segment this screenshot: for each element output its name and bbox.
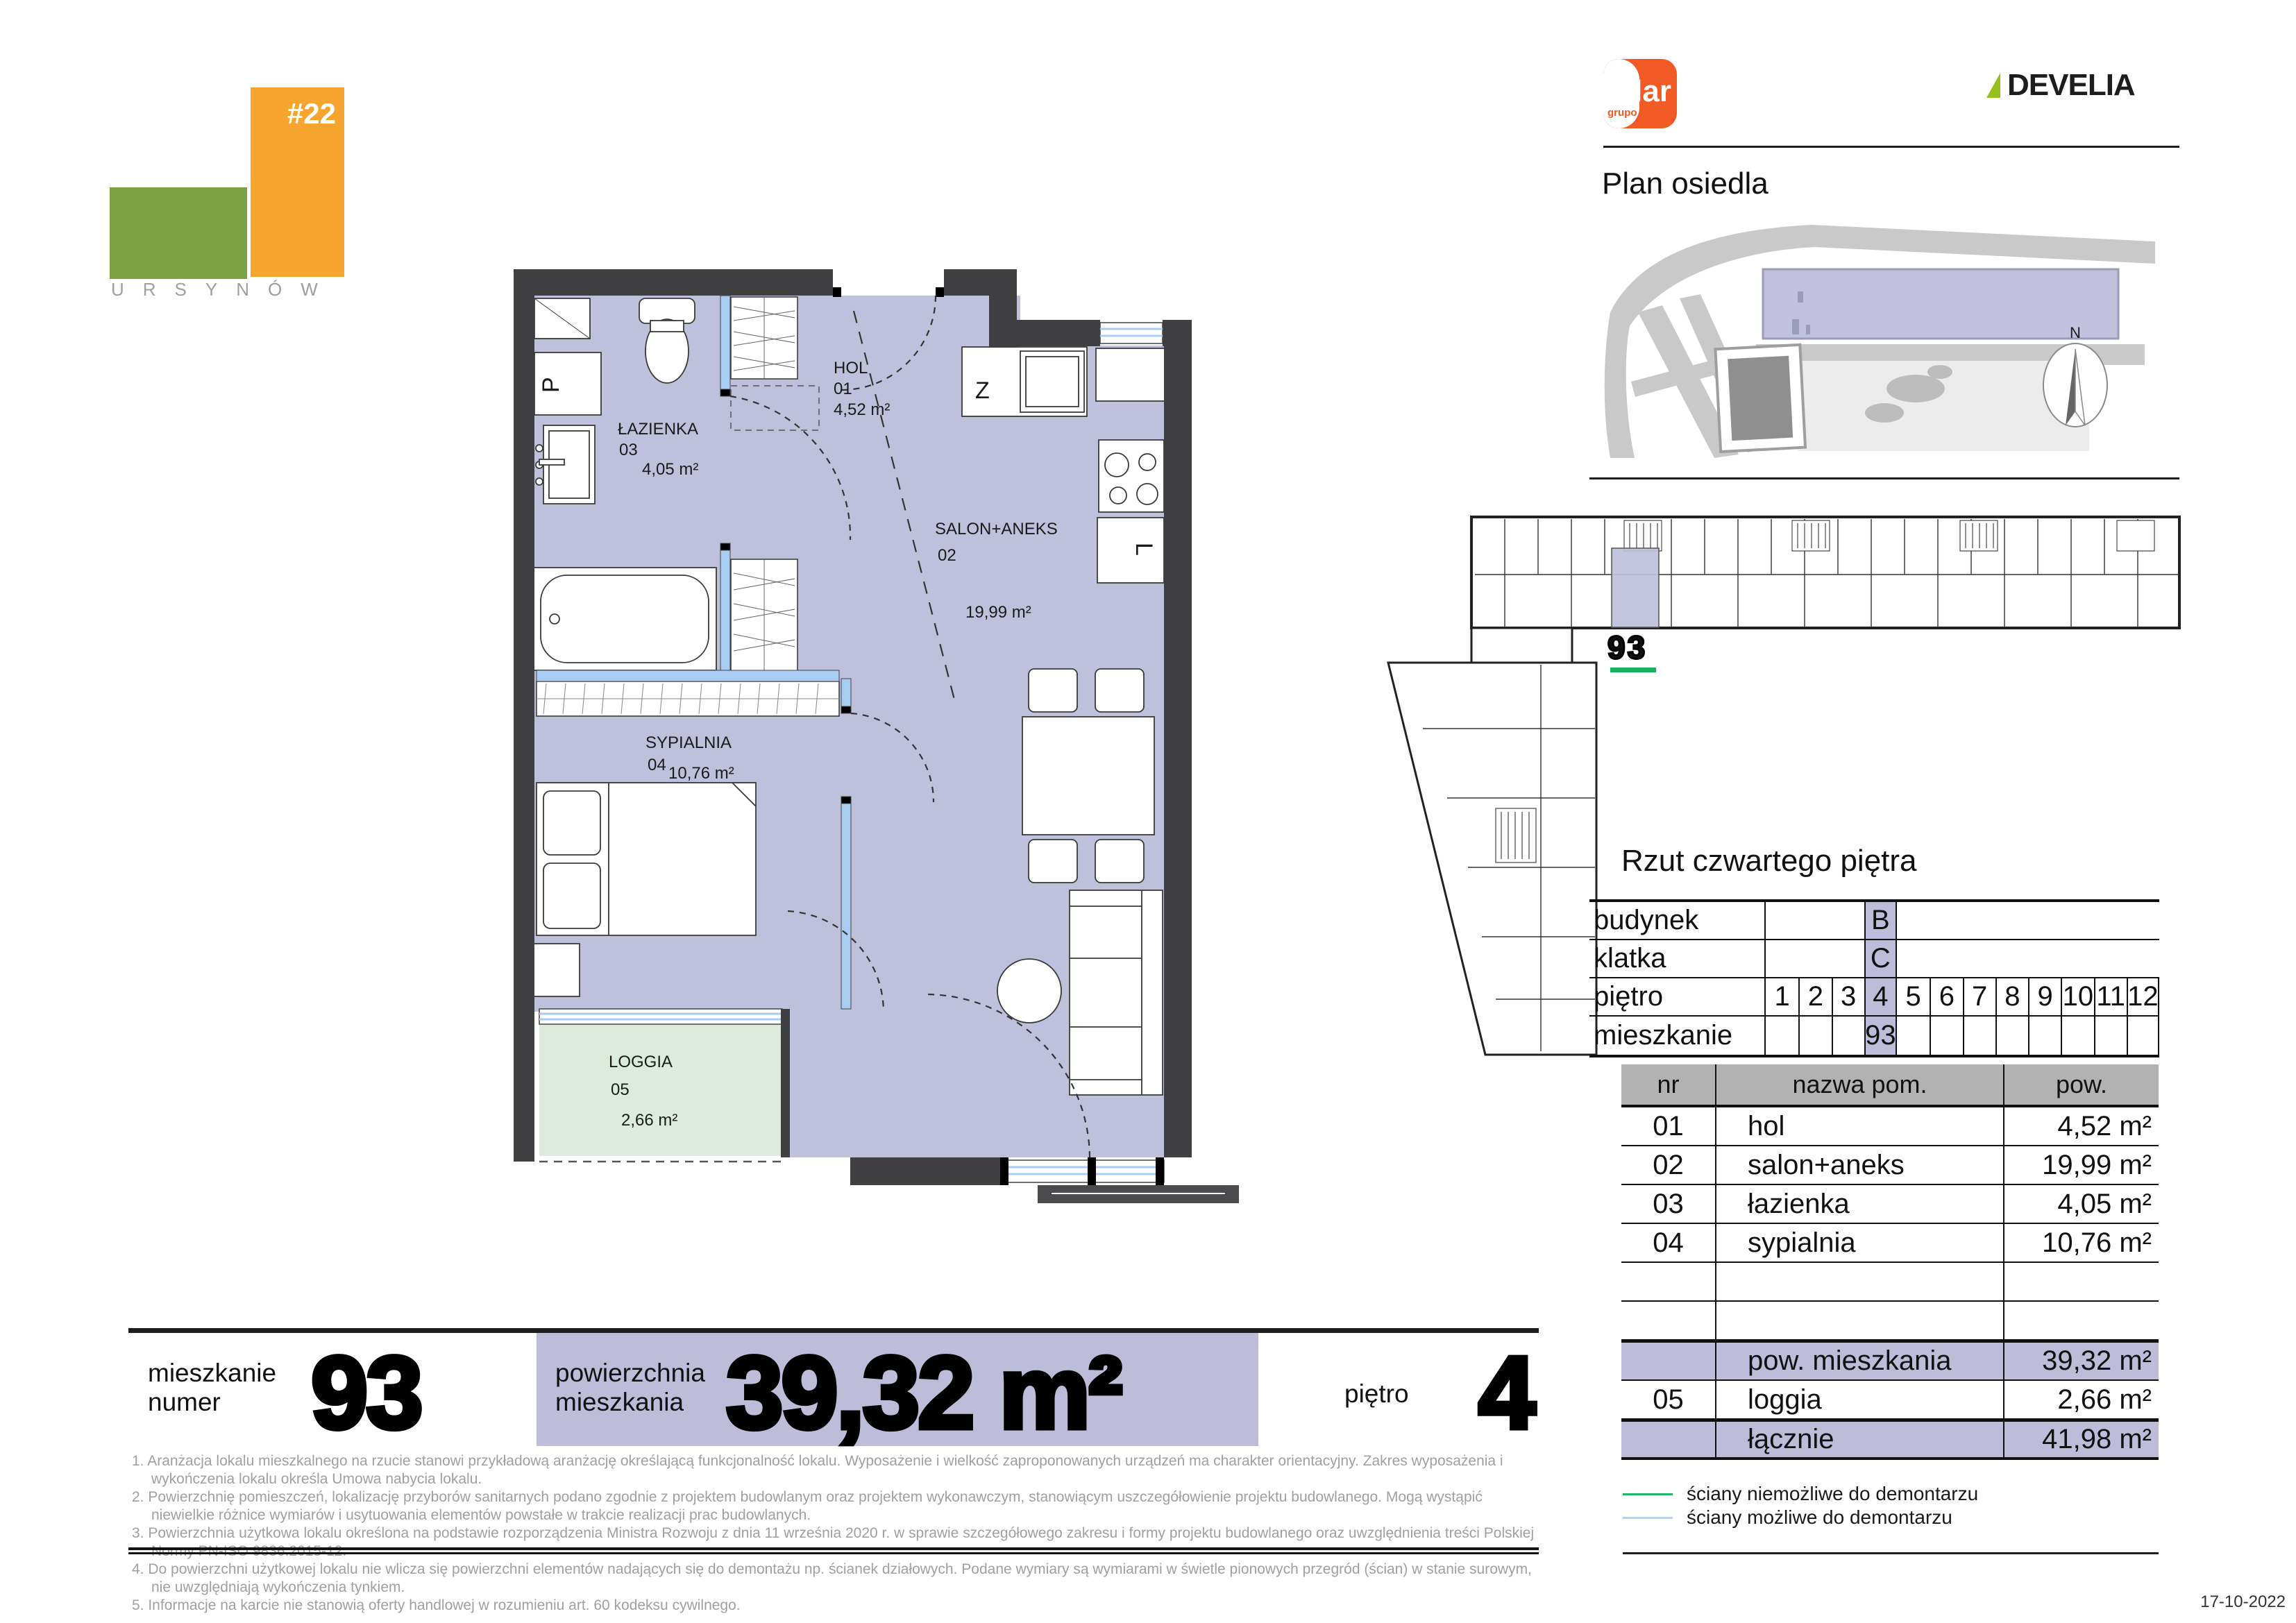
legend-swatch-green	[1623, 1493, 1673, 1495]
room-nr-lazienka: 03	[619, 441, 638, 459]
divider-under-logos	[1603, 146, 2179, 148]
unit-number-underline	[1610, 668, 1656, 672]
built-in-wardrobe-band	[537, 681, 839, 716]
compass-n-label: N	[2070, 324, 2081, 341]
room-nr-salon: 02	[938, 546, 956, 565]
room-label-sypialnia: SYPIALNIA	[645, 733, 732, 752]
grupo-label: grupo	[1607, 107, 1637, 119]
footer-floor-label: piętro	[1344, 1379, 1409, 1409]
summary-label: pow. mieszkania	[1715, 1343, 2003, 1379]
info-floor-selected: 4	[1864, 978, 1897, 1015]
rooms-area-table: nr nazwa pom. pow. 01 hol 4,52 m² 02 sal…	[1621, 1064, 2159, 1460]
district-name: URSYNÓW	[111, 279, 337, 300]
footer-top-rule	[128, 1328, 1539, 1333]
table-row: 02 salon+aneks 19,99 m²	[1621, 1146, 2159, 1185]
unit-info-table: budynek B klatka C piętro 1 2 3 4 5 6 7 …	[1589, 899, 2159, 1057]
marker-sink-l: L	[1131, 543, 1157, 556]
footnotes-bottom-rule	[128, 1547, 1539, 1554]
footnotes: 1. Aranżacja lokalu mieszkalnego na rzuc…	[132, 1452, 1538, 1615]
floor-view-caption: Rzut czwartego piętra	[1621, 844, 1917, 878]
total-label: łącznie	[1715, 1422, 2003, 1457]
info-value-building: B	[1864, 902, 1897, 939]
legend-item-demountable: ściany możliwe do demontarzu	[1623, 1506, 1978, 1529]
header-name: nazwa pom.	[1715, 1064, 2003, 1105]
marker-shaft-p: P	[538, 377, 564, 393]
footnote: 2. Powierzchnię pomieszczeń, lokalizację…	[132, 1488, 1538, 1524]
loggia-floor	[539, 1024, 782, 1156]
room-area-lazienka: 4,05 m²	[642, 460, 698, 479]
divider-under-map	[1589, 477, 2179, 479]
kitchen-window	[1100, 323, 1163, 343]
room-area-salon: 19,99 m²	[965, 603, 1031, 622]
walls-legend: ściany niemożliwe do demontarzu ściany m…	[1623, 1482, 1978, 1529]
shaft-box	[534, 298, 590, 339]
info-label-apartment: mieszkanie	[1589, 1017, 1766, 1055]
table-row: 03 łazienka 4,05 m²	[1621, 1185, 2159, 1224]
room-nr-loggia: 05	[611, 1080, 630, 1099]
grupo-lar-logo: grupo lar	[1603, 59, 1677, 128]
info-row-floor: piętro 1 2 3 4 5 6 7 8 9 10 11 12	[1589, 978, 2159, 1017]
site-plan-highlighted-building	[1763, 269, 2118, 339]
bathroom-sink	[536, 425, 595, 504]
room-label-hol: HOL	[834, 359, 868, 377]
footer-apartment-label: mieszkanie numer	[148, 1359, 276, 1417]
bathtub	[532, 568, 716, 670]
total-area: 41,98 m²	[2003, 1422, 2159, 1457]
lar-label: lar	[1634, 74, 1671, 109]
room-area-sypialnia: 10,76 m²	[668, 764, 734, 783]
hall-wardrobe-bottom	[731, 559, 797, 677]
rooms-table-header: nr nazwa pom. pow.	[1621, 1064, 2159, 1107]
kitchen-cabinet	[1096, 348, 1165, 401]
info-row-apartment: mieszkanie 93	[1589, 1017, 2159, 1055]
footer-area-value: 39,32 m²	[726, 1342, 1120, 1445]
room-area-hol: 4,52 m²	[834, 400, 890, 419]
site-plan-secondary-building	[1715, 345, 1805, 452]
legend-bottom-rule	[1623, 1552, 2159, 1554]
summary-area: 39,32 m²	[2003, 1343, 2159, 1379]
dining-table	[1022, 717, 1154, 835]
double-bed	[537, 783, 756, 935]
project-tag: #22	[250, 97, 340, 130]
table-row-total: łącznie 41,98 m²	[1621, 1420, 2159, 1460]
room-nr-hol: 01	[834, 380, 852, 398]
room-label-loggia: LOGGIA	[609, 1053, 673, 1071]
footer-area-label: powierzchnia mieszkania	[555, 1359, 705, 1417]
info-value-apartment: 93	[1864, 1017, 1897, 1055]
info-row-staircase: klatka C	[1589, 940, 2159, 978]
building-plan-unit-number: 93	[1607, 629, 1647, 666]
nightstand	[534, 944, 580, 996]
loggia-window	[539, 1009, 782, 1024]
info-row-building: budynek B	[1589, 902, 2159, 940]
header-nr: nr	[1621, 1064, 1715, 1105]
kitchen-stove	[1099, 440, 1164, 512]
info-label-staircase: klatka	[1589, 940, 1766, 977]
info-value-staircase: C	[1864, 940, 1897, 977]
header-area: pow.	[2003, 1064, 2159, 1105]
develia-logo: DEVELIA	[1986, 68, 2135, 103]
footer-apartment-number: 93	[311, 1342, 421, 1445]
hall-wardrobe-top	[731, 297, 797, 379]
room-nr-sypialnia: 04	[648, 756, 666, 774]
footnote: 3. Powierzchnia użytkowa lokalu określon…	[132, 1524, 1538, 1561]
building-plan-highlighted-unit	[1612, 548, 1659, 627]
room-label-salon: SALON+ANEKS	[935, 520, 1058, 538]
develia-triangle-icon	[1986, 73, 2000, 98]
legend-swatch-blue	[1623, 1517, 1673, 1519]
room-label-lazienka: ŁAZIENKA	[618, 420, 698, 439]
site-plan-title: Plan osiedla	[1602, 167, 1769, 201]
table-row: 04 sypialnia 10,76 m²	[1621, 1224, 2159, 1263]
site-plan-map: N	[1589, 208, 2179, 472]
table-row: 01 hol 4,52 m²	[1621, 1107, 2159, 1146]
table-row-empty	[1621, 1263, 2159, 1302]
document-date: 17-10-2022	[2075, 1592, 2286, 1612]
apartment-floor-plan: ŁAZIENKA 03 4,05 m² HOL 01 4,52 m² SALON…	[503, 262, 1253, 1206]
footnote: 4. Do powierzchni użytkowej lokalu nie w…	[132, 1561, 1538, 1597]
room-area-loggia: 2,66 m²	[621, 1111, 677, 1130]
info-label-building: budynek	[1589, 902, 1766, 939]
footer-floor-value: 4	[1478, 1342, 1533, 1445]
table-row-summary: pow. mieszkania 39,32 m²	[1621, 1341, 2159, 1381]
footnote: 1. Aranżacja lokalu mieszkalnego na rzuc…	[132, 1452, 1538, 1488]
table-row-loggia: 05 loggia 2,66 m²	[1621, 1381, 2159, 1420]
develia-wordmark: DEVELIA	[2007, 68, 2135, 103]
sofa	[1070, 890, 1163, 1095]
info-label-floor: piętro	[1589, 978, 1766, 1015]
marker-closet-z: Z	[975, 377, 990, 404]
footnote: 5. Informacje na karcie nie stanowią ofe…	[132, 1597, 1538, 1615]
floorplan-card-page: #22 URSYNÓW grupo lar DEVELIA Plan osied…	[0, 0, 2296, 1623]
table-row-empty	[1621, 1302, 2159, 1341]
side-table	[997, 959, 1061, 1023]
legend-item-nondemountable: ściany niemożliwe do demontarzu	[1623, 1482, 1978, 1506]
